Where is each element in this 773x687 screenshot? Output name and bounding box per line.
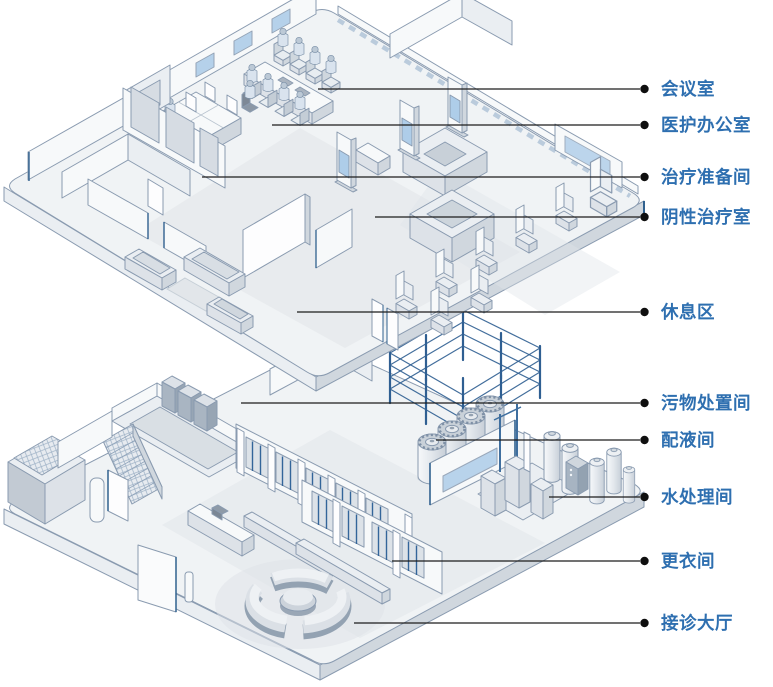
callout-label-treatment-prep-room: 治疗准备间 xyxy=(661,165,751,189)
callout-label-negative-treatment-room: 阴性治疗室 xyxy=(661,205,751,229)
callout-label-changing-room: 更衣间 xyxy=(661,549,715,573)
labels-layer: 会议室医护办公室治疗准备间阴性治疗室休息区污物处置间配液间水处理间更衣间接诊大厅 xyxy=(0,0,773,687)
callout-label-medical-office: 医护办公室 xyxy=(661,113,751,137)
callout-label-reception-hall: 接诊大厅 xyxy=(661,611,733,635)
callout-label-water-treatment-room: 水处理间 xyxy=(661,485,733,509)
callout-label-liquid-prep-room: 配液间 xyxy=(661,428,715,452)
diagram-stage: 会议室医护办公室治疗准备间阴性治疗室休息区污物处置间配液间水处理间更衣间接诊大厅 xyxy=(0,0,773,687)
callout-label-waste-disposal-room: 污物处置间 xyxy=(661,391,751,415)
callout-label-rest-area: 休息区 xyxy=(661,300,715,324)
callout-label-conference-room: 会议室 xyxy=(661,77,715,101)
